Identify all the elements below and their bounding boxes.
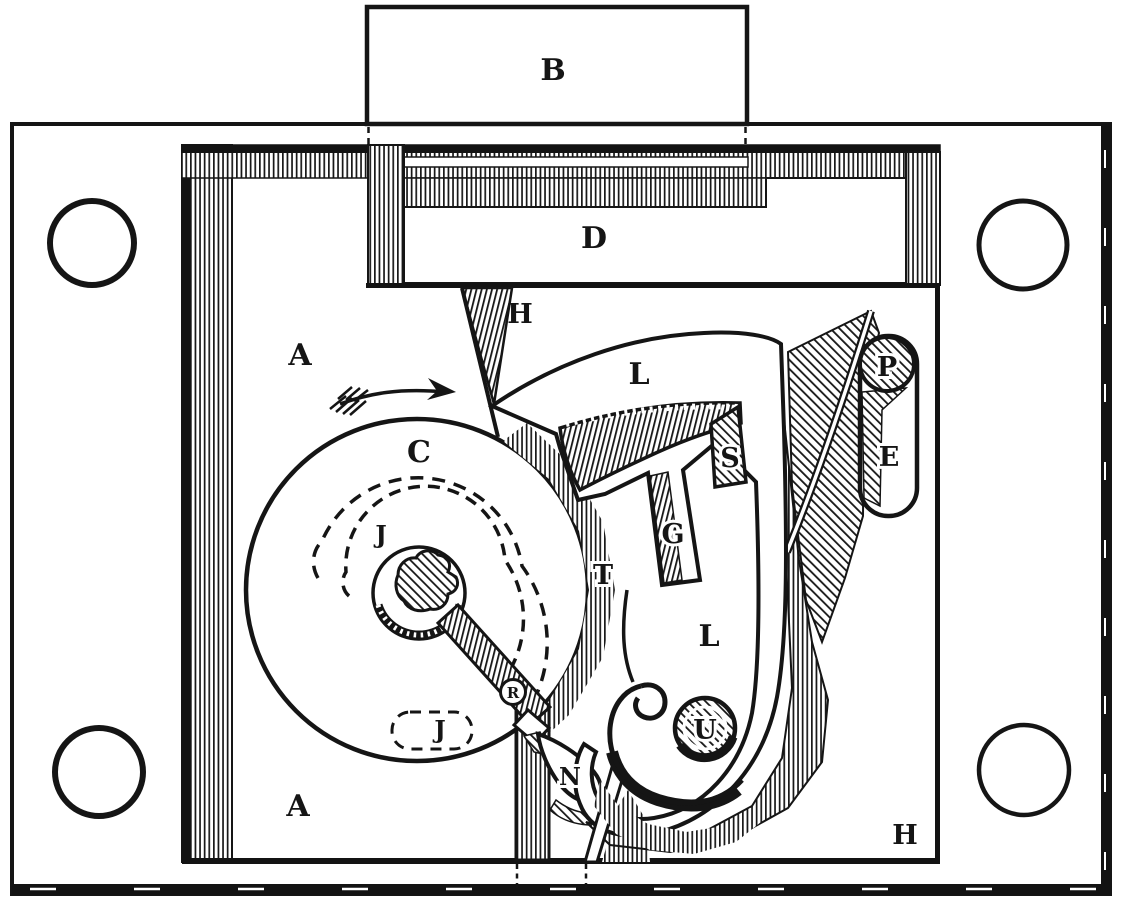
case-bottom-line <box>182 858 940 864</box>
label-t: T <box>593 560 613 591</box>
label-s: S <box>720 443 740 474</box>
label-b: B <box>540 53 565 88</box>
case-left-edge <box>182 145 191 862</box>
label-h-lower: H <box>892 820 918 851</box>
label-l-upper: L <box>628 357 649 392</box>
label-l-lower: L <box>698 619 719 654</box>
label-c: C <box>407 435 431 470</box>
label-a-lower: A <box>285 789 310 824</box>
bolt-head-left-column <box>368 145 404 285</box>
case-corner-block <box>906 152 940 285</box>
bolt-head-hatch <box>368 178 766 207</box>
label-e: E <box>879 442 900 473</box>
engraving-page: B D A A H H C J J T L L S G R N U E P <box>0 0 1124 908</box>
bolt-tail-bottom-line <box>366 283 940 288</box>
label-j-lower: J <box>432 715 445 744</box>
label-u: U <box>693 715 717 746</box>
case-right-line <box>935 283 940 862</box>
wheel-c <box>246 419 615 761</box>
lock-diagram: B D A A H H C J J T L L S G R N U E P <box>0 0 1124 908</box>
label-g: G <box>661 519 684 550</box>
label-j-upper: J <box>373 520 386 549</box>
label-d: D <box>581 221 607 256</box>
case-top-edge <box>182 145 940 153</box>
bolt-slot <box>368 157 748 167</box>
label-n: N <box>559 762 581 791</box>
label-p: P <box>877 352 897 383</box>
label-h-upper: H <box>507 299 533 330</box>
label-a-upper: A <box>287 338 312 373</box>
label-r: R <box>507 684 520 702</box>
